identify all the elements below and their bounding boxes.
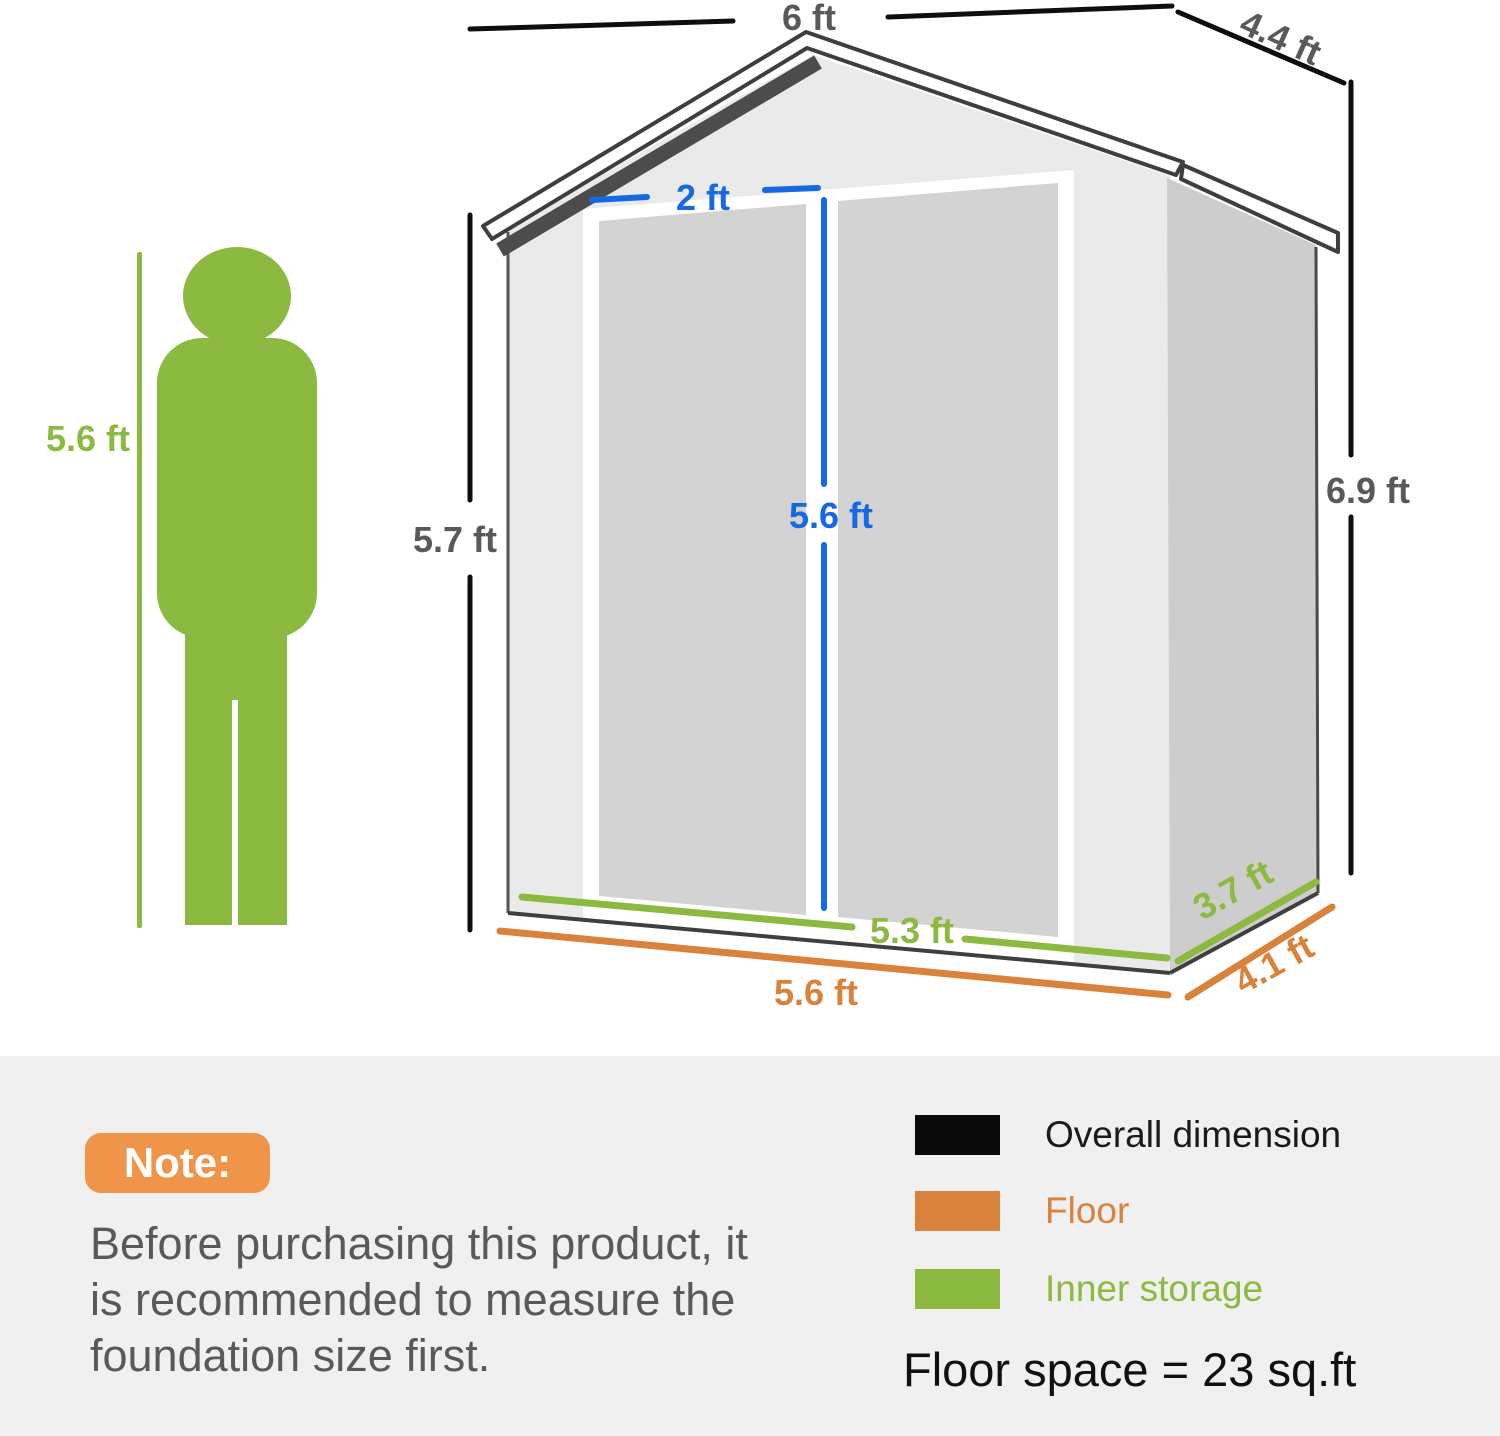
overall-width-label: 6 ft — [782, 0, 836, 38]
person-torso — [157, 338, 317, 638]
inner-storage-label: Inner storage — [1045, 1268, 1263, 1310]
overall-dimension-label: Overall dimension — [1045, 1114, 1341, 1156]
inner-storage-swatch — [915, 1269, 1000, 1309]
person-head — [183, 247, 291, 345]
product-dimension-diagram: 5.6 ft — [0, 0, 1500, 1436]
door-width-label: 2 ft — [676, 177, 730, 218]
person-silhouette: 5.6 ft — [46, 247, 317, 928]
overall-dimension-swatch — [915, 1115, 1000, 1155]
note-badge: Note: — [85, 1133, 270, 1193]
shed — [483, 32, 1338, 973]
overall-width-line-right — [888, 6, 1172, 17]
floor-label: Floor — [1045, 1190, 1129, 1232]
person-leg-divider — [232, 700, 238, 926]
door-width-dash-right — [765, 188, 818, 190]
floor-space-text: Floor space = 23 sq.ft — [903, 1342, 1356, 1397]
door-width-dash-left — [592, 197, 647, 200]
door-height-label: 5.6 ft — [789, 495, 873, 536]
left-door-panel — [599, 204, 806, 915]
info-strip: Note: Before purchasing this product, it… — [0, 1056, 1500, 1436]
note-badge-label: Note: — [124, 1139, 231, 1187]
shed-diagram: 5.6 ft — [0, 0, 1500, 1060]
person-height-line — [137, 252, 142, 928]
ridge-height-label: 6.9 ft — [1326, 470, 1410, 511]
shed-side-face — [1167, 178, 1318, 973]
floor-width-label: 5.6 ft — [774, 972, 858, 1013]
overall-width-line-left — [470, 21, 733, 29]
right-door-panel — [838, 183, 1058, 937]
legend-row-overall: Overall dimension — [915, 1114, 1341, 1156]
person-height-label: 5.6 ft — [46, 418, 130, 459]
inner-width-label: 5.3 ft — [870, 910, 954, 951]
floor-swatch — [915, 1191, 1000, 1231]
eave-height-label: 5.7 ft — [413, 519, 497, 560]
overall-depth-label: 4.4 ft — [1234, 2, 1327, 74]
legend-row-floor: Floor — [915, 1190, 1129, 1232]
note-text: Before purchasing this product, it is re… — [90, 1216, 790, 1383]
wall-back-edge — [1316, 247, 1318, 893]
legend-row-inner: Inner storage — [915, 1268, 1263, 1310]
